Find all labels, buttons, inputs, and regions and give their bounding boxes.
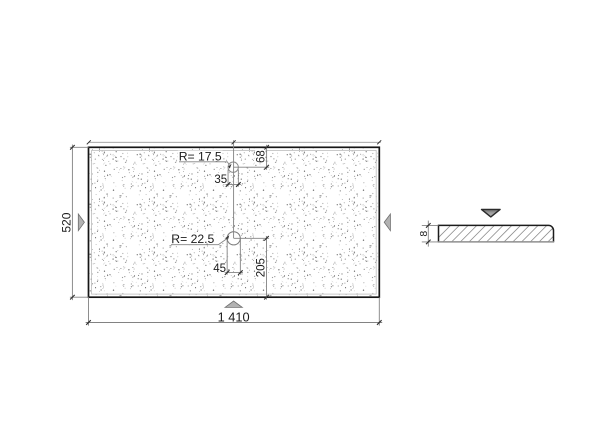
svg-text:1 410: 1 410 — [218, 309, 250, 324]
svg-text:35: 35 — [214, 174, 227, 186]
svg-text:45: 45 — [213, 263, 226, 275]
svg-text:R= 22.5: R= 22.5 — [171, 232, 214, 246]
svg-text:8: 8 — [418, 231, 430, 237]
svg-text:205: 205 — [256, 258, 268, 277]
svg-text:520: 520 — [60, 212, 74, 232]
svg-text:R= 17.5: R= 17.5 — [179, 150, 222, 164]
svg-text:68: 68 — [255, 150, 267, 163]
